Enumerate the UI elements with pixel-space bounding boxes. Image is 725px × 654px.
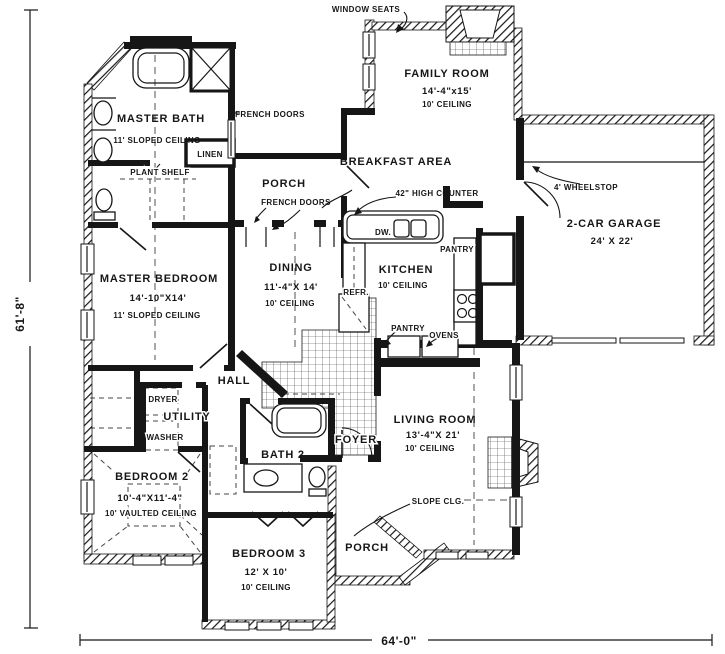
label-dining: DINING [269, 262, 312, 274]
label-breakfast-area: BREAKFAST AREA [340, 156, 452, 168]
label-dw: DW. [375, 228, 391, 237]
label-plant-shelf: PLANT SHELF [130, 168, 190, 177]
label-master-bath: MASTER BATH [117, 113, 205, 125]
label-bedroom-3: BEDROOM 3 [232, 548, 306, 560]
label-slope-clg: SLOPE CLG. [412, 497, 464, 506]
label-master-bedroom: MASTER BEDROOM [100, 273, 218, 285]
family-room-fireplace [446, 6, 514, 55]
label-window-seats: WINDOW SEATS [332, 5, 400, 14]
label-porch-upper: PORCH [262, 178, 306, 190]
label-pantry-lower: PANTRY [391, 324, 425, 333]
label-dryer: DRYER [148, 395, 177, 404]
label-bedroom-2-size: 10'-4"X11'-4" [117, 493, 182, 504]
label-kitchen-ceiling: 10' CEILING [378, 281, 428, 290]
label-refr: REFR. [343, 288, 369, 297]
label-high-counter: 42" HIGH COUNTER [395, 189, 478, 198]
label-washer: WASHER [147, 433, 184, 442]
bath2-toilet [309, 467, 326, 496]
label-living-room: LIVING ROOM [394, 414, 477, 426]
cooktop [454, 290, 478, 322]
label-french-doors-porch: FRENCH DOORS [261, 198, 331, 207]
label-bedroom-2: BEDROOM 2 [115, 471, 189, 483]
label-family-room-ceiling: 10' CEILING [422, 100, 472, 109]
bath2-tub [272, 404, 326, 437]
label-family-room: FAMILY ROOM [404, 68, 489, 80]
label-dining-ceiling: 10' CEILING [265, 299, 315, 308]
label-kitchen: KITCHEN [379, 264, 434, 276]
bath2-vanity [244, 464, 302, 492]
label-utility: UTILITY [163, 411, 210, 423]
shower [191, 47, 231, 91]
label-garage: 2-CAR GARAGE [567, 218, 662, 230]
pantry-closet-upper [480, 234, 514, 284]
label-garage-size: 24' X 22' [591, 236, 634, 247]
label-bedroom-3-ceiling: 10' CEILING [241, 583, 291, 592]
label-ovens: OVENS [429, 331, 459, 340]
label-foyer: FOYER [335, 434, 377, 446]
bathtub [133, 48, 189, 88]
dimension-bottom-label: 64'-0" [381, 634, 417, 648]
label-linen: LINEN [197, 150, 223, 159]
refrigerator [339, 294, 369, 332]
label-french-doors-master: FRENCH DOORS [235, 110, 305, 119]
label-bedroom-2-ceiling: 10' VAULTED CEILING [105, 509, 197, 518]
label-family-room-size: 14'-4"x15' [422, 86, 472, 97]
dimension-left-label: 61'-8" [13, 296, 27, 332]
floor-plan: 61'-8" 64'-0" WINDOW SEATS FAMILY ROOM 1… [0, 0, 725, 654]
label-master-bedroom-ceiling: 11' SLOPED CEILING [113, 311, 200, 320]
label-bedroom-3-size: 12' X 10' [245, 567, 288, 578]
label-porch-lower: PORCH [345, 542, 389, 554]
label-wheelstop: 4' WHEELSTOP [554, 183, 618, 192]
label-pantry-upper: PANTRY [440, 245, 474, 254]
label-master-bedroom-size: 14'-10"X14' [130, 293, 187, 304]
label-dining-size: 11'-4"X 14' [264, 282, 318, 293]
label-hall: HALL [218, 375, 251, 387]
label-master-bath-ceiling: 11' SLOPED CEILING [113, 136, 200, 145]
label-living-room-size: 13'-4"X 21' [406, 430, 460, 441]
label-living-room-ceiling: 10' CEILING [405, 444, 455, 453]
label-bath-2: BATH 2 [261, 449, 305, 461]
